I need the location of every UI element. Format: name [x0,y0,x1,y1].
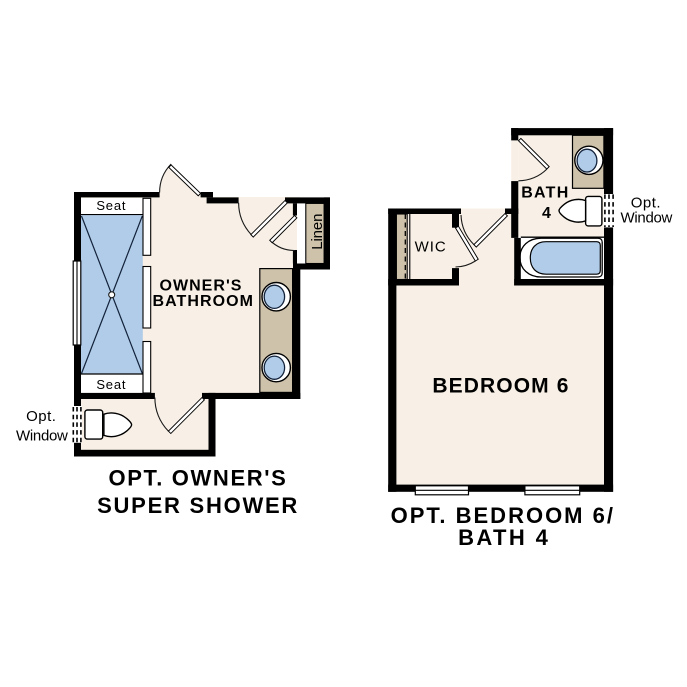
svg-text:BATHROOM: BATHROOM [153,293,255,310]
svg-text:OPT. BEDROOM 6/: OPT. BEDROOM 6/ [391,503,615,528]
svg-text:BATH 4: BATH 4 [458,525,550,550]
svg-text:Opt.: Opt. [26,408,56,425]
svg-text:OPT. OWNER'S: OPT. OWNER'S [108,465,287,490]
svg-text:Seat: Seat [96,377,126,392]
svg-text:WIC: WIC [415,239,447,256]
svg-text:4: 4 [542,205,551,222]
svg-text:OWNER'S: OWNER'S [159,278,242,295]
svg-text:Linen: Linen [309,214,326,250]
svg-text:BATH: BATH [521,184,569,201]
svg-text:BEDROOM 6: BEDROOM 6 [432,374,569,397]
svg-text:Window: Window [621,210,673,227]
svg-text:Window: Window [16,427,68,444]
svg-text:Seat: Seat [96,198,126,213]
svg-text:SUPER SHOWER: SUPER SHOWER [97,493,299,518]
